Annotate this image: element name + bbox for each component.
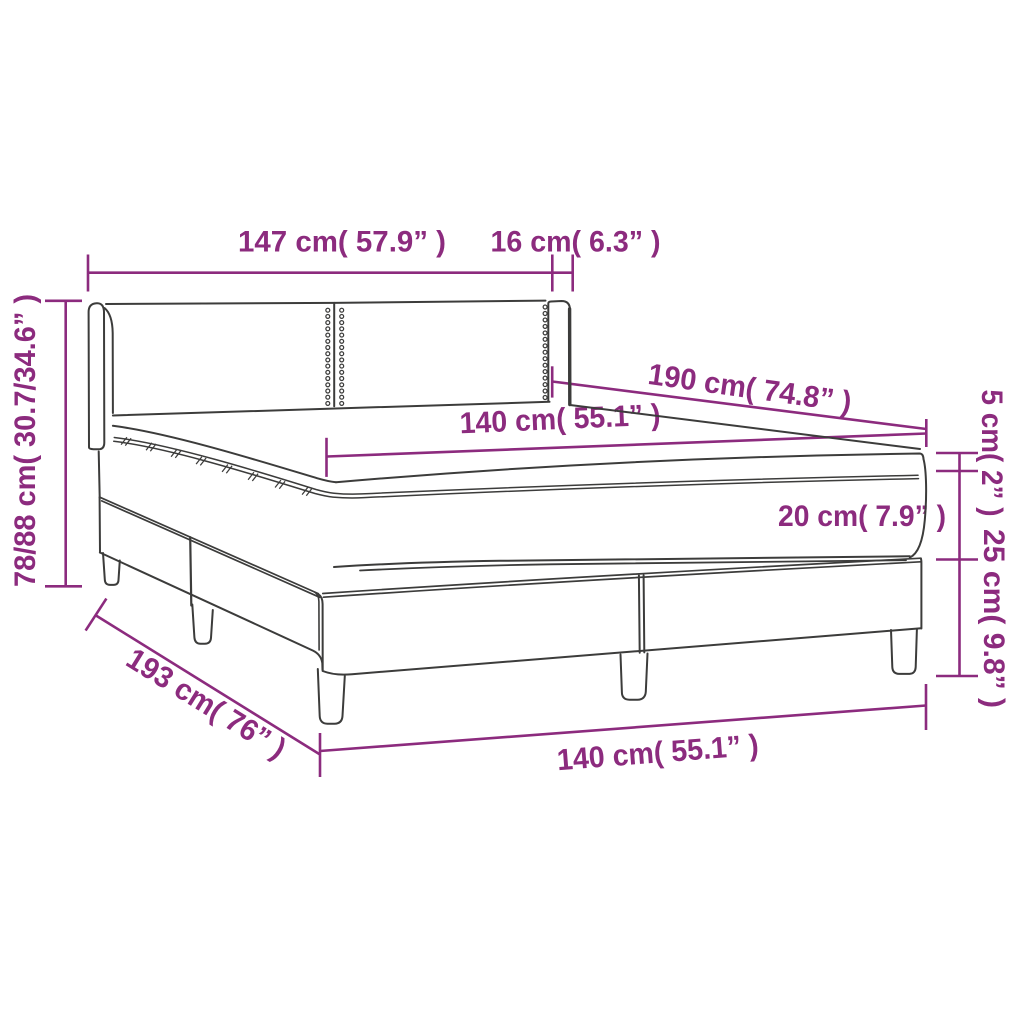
svg-text:25 cm( 9.8” ): 25 cm( 9.8” )	[977, 529, 1010, 708]
svg-text:20 cm( 7.9” ): 20 cm( 7.9” )	[778, 500, 946, 533]
svg-text:78/88 cm( 30.7/34.6” ): 78/88 cm( 30.7/34.6” )	[9, 294, 42, 587]
svg-text:5 cm( 2” ): 5 cm( 2” )	[975, 390, 1008, 517]
svg-text:147 cm( 57.9” ): 147 cm( 57.9” )	[238, 226, 446, 259]
svg-text:16 cm( 6.3” ): 16 cm( 6.3” )	[491, 226, 661, 259]
